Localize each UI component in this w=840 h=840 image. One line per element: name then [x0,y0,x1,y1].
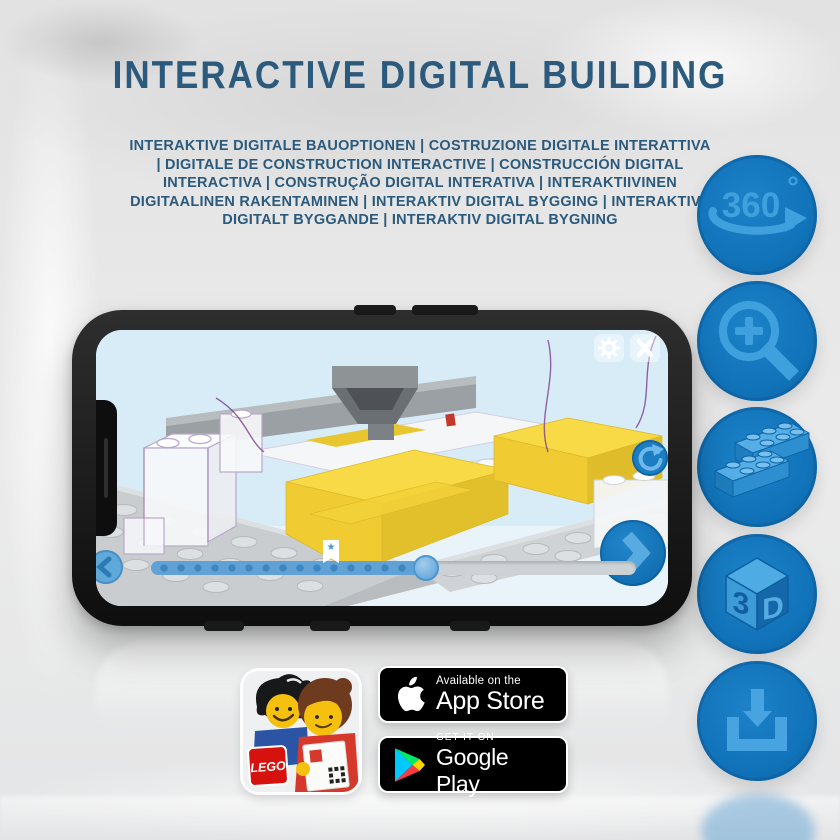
previous-step-button[interactable] [96,550,123,584]
phone-mockup: ★ [72,310,692,626]
lego-app-icon[interactable]: LEGO [243,671,359,792]
rotate-icon [632,440,668,476]
zoom-in-icon [697,281,817,401]
svg-text:°: ° [787,171,799,204]
close-button[interactable] [630,334,660,362]
progress-slider-knob[interactable] [413,555,439,581]
star-glyph: ★ [327,542,336,553]
multilingual-subtitle: INTERAKTIVE DIGITALE BAUOPTIONEN | COSTR… [128,137,712,230]
3d-cube-icon: 3 D [697,534,817,654]
app-store-badge[interactable]: Available on the App Store [378,666,568,723]
google-play-badge[interactable]: GET IT ON Google Play [378,736,568,793]
feature-download [697,661,817,781]
svg-text:3: 3 [733,586,750,622]
close-icon [630,334,660,362]
lego-brick-icon [697,407,817,527]
app-screen[interactable]: ★ [96,330,668,606]
svg-text:360: 360 [722,186,780,225]
phone-button [412,305,478,315]
phone-button [204,621,244,631]
phone-notch [96,400,117,536]
phone-button [450,621,490,631]
build-progress-track[interactable] [151,561,636,575]
page-title: INTERACTIVE DIGITAL BUILDING [0,54,840,98]
google-play-icon [392,748,428,782]
rotate-model-button[interactable] [632,440,668,476]
chevron-left-icon [96,550,123,584]
earpiece [104,438,108,498]
feature-zoom [697,281,817,401]
badge-line2: Google Play [436,744,556,798]
next-step-button[interactable] [600,520,666,586]
phone-button [354,305,396,315]
svg-text:LEGO: LEGO [250,759,287,775]
phone-button [310,621,350,631]
badge-line1: GET IT ON [436,731,556,744]
build-progress-fill [151,561,427,575]
promo-poster: INTERACTIVE DIGITAL BUILDING INTERAKTIVE… [0,0,840,840]
apple-icon [392,677,428,713]
chevron-right-icon [600,520,666,586]
feature-3d-view: 3 D [697,534,817,654]
badge-line1: Available on the [436,675,544,688]
download-icon [697,661,817,781]
lego-app-icon-art: LEGO [243,671,359,792]
settings-button[interactable] [594,334,624,362]
feature-bricks [697,407,817,527]
360-rotation-icon: 360 ° [697,155,817,275]
gear-icon [594,334,624,362]
svg-text:D: D [762,590,784,627]
badge-line2: App Store [436,688,544,715]
feature-360-rotation: 360 ° [697,155,817,275]
